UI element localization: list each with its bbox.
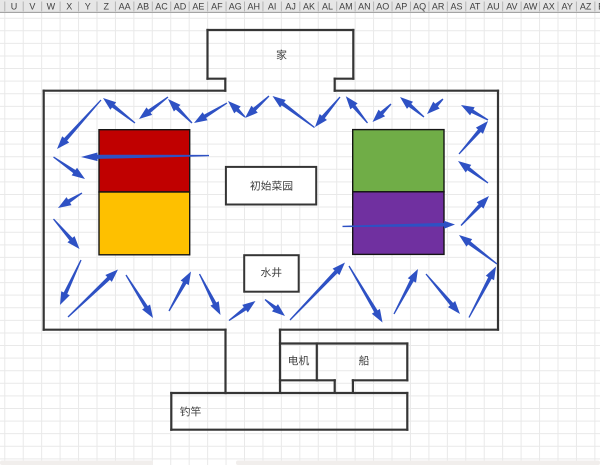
svg-text:X: X: [66, 2, 72, 12]
svg-text:AV: AV: [506, 2, 517, 12]
svg-text:AA: AA: [119, 2, 131, 12]
svg-text:AB: AB: [137, 2, 149, 12]
svg-text:AW: AW: [523, 2, 538, 12]
svg-text:Y: Y: [85, 2, 91, 12]
svg-text:AY: AY: [562, 2, 573, 12]
svg-text:AD: AD: [174, 2, 187, 12]
svg-text:AK: AK: [303, 2, 315, 12]
svg-text:AZ: AZ: [580, 2, 592, 12]
svg-text:AQ: AQ: [413, 2, 426, 12]
svg-text:AM: AM: [339, 2, 353, 12]
svg-text:AR: AR: [432, 2, 445, 12]
svg-text:AN: AN: [358, 2, 371, 12]
svg-text:AH: AH: [247, 2, 260, 12]
svg-text:AS: AS: [451, 2, 463, 12]
svg-text:U: U: [11, 2, 18, 12]
svg-text:AT: AT: [470, 2, 481, 12]
svg-text:AF: AF: [211, 2, 223, 12]
svg-text:W: W: [47, 2, 56, 12]
svg-text:AG: AG: [229, 2, 242, 12]
svg-text:AO: AO: [376, 2, 389, 12]
svg-text:AU: AU: [487, 2, 500, 12]
svg-text:AP: AP: [395, 2, 407, 12]
svg-text:AI: AI: [268, 2, 277, 12]
svg-text:AC: AC: [155, 2, 168, 12]
svg-text:AJ: AJ: [285, 2, 296, 12]
svg-text:AE: AE: [192, 2, 204, 12]
svg-text:Z: Z: [103, 2, 109, 12]
svg-text:V: V: [29, 2, 35, 12]
svg-text:AX: AX: [543, 2, 555, 12]
svg-text:AL: AL: [322, 2, 333, 12]
